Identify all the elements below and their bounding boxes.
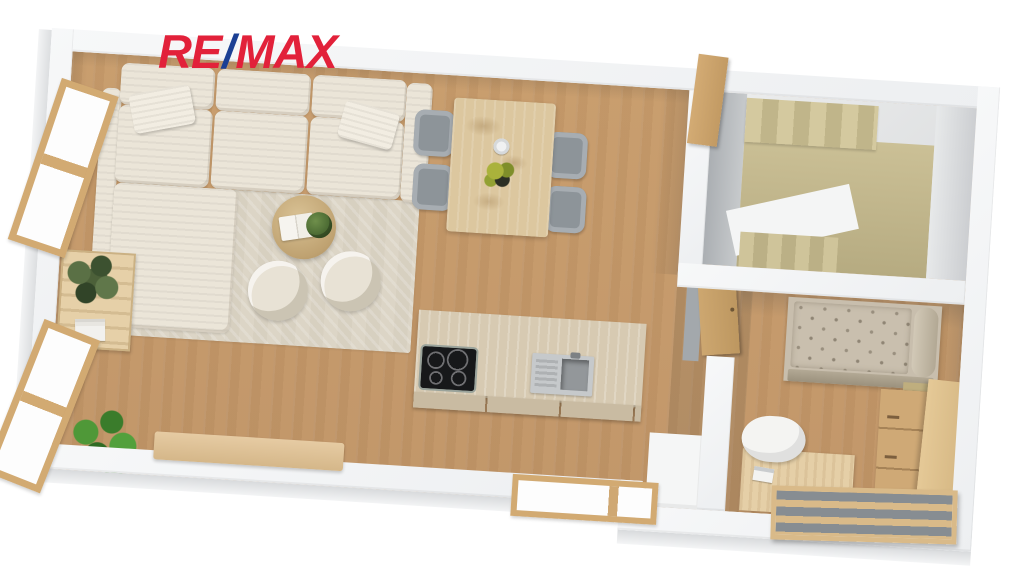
tufted-mattress: [790, 301, 912, 374]
stairwell-room: [700, 92, 976, 281]
dining-table: [446, 97, 556, 237]
remax-logo: RE/MAX: [158, 24, 337, 79]
slatted-bench: [770, 485, 957, 544]
stair-top-steps: [744, 98, 879, 150]
laptop: [752, 466, 774, 483]
logo-re: RE: [158, 25, 221, 78]
daybed: [783, 297, 942, 391]
dining-chair: [413, 109, 456, 157]
flower-vase: [481, 157, 521, 191]
bolster-pillow: [911, 307, 939, 378]
window-bottom: [510, 474, 658, 525]
drawer-handle: [887, 415, 899, 419]
logo-slash-icon: /: [222, 25, 234, 78]
sink-drainboard: [534, 359, 558, 388]
sofa-seat-cushion: [210, 110, 309, 194]
floor-plan-render: RE/MAX: [0, 0, 1024, 576]
sink-basin: [560, 359, 589, 392]
logo-max: MAX: [235, 25, 336, 78]
drawer-handle: [885, 455, 897, 459]
induction-cooktop: [420, 346, 477, 391]
cup: [493, 138, 510, 155]
sink-faucet: [570, 352, 580, 359]
kitchen-sink: [530, 353, 594, 397]
table-plant: [305, 211, 333, 239]
door-handle: [730, 307, 734, 311]
floor-plan: [23, 28, 1000, 552]
side-table-plant: [56, 245, 128, 315]
